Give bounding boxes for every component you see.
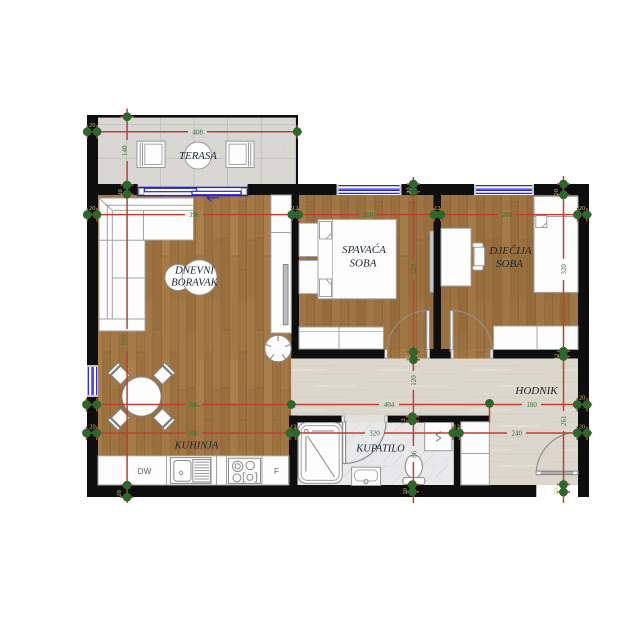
svg-text:408: 408: [192, 128, 203, 136]
svg-text:20: 20: [553, 488, 560, 494]
svg-text:120: 120: [410, 375, 418, 386]
svg-text:12: 12: [405, 355, 412, 361]
svg-text:12: 12: [434, 205, 440, 212]
svg-text:DW: DW: [138, 467, 152, 476]
svg-text:280: 280: [502, 211, 513, 219]
svg-text:140: 140: [121, 145, 129, 156]
svg-text:396: 396: [188, 430, 199, 438]
svg-text:320: 320: [560, 264, 568, 275]
svg-text:86: 86: [410, 450, 418, 458]
svg-text:20: 20: [89, 424, 95, 431]
svg-text:12: 12: [292, 205, 298, 212]
svg-text:F: F: [274, 467, 279, 476]
svg-text:240: 240: [511, 430, 522, 438]
svg-text:20: 20: [402, 488, 409, 494]
svg-text:BORAVAK: BORAVAK: [171, 277, 218, 289]
svg-text:TERASA: TERASA: [179, 150, 217, 162]
svg-text:20: 20: [405, 187, 412, 193]
svg-text:12: 12: [400, 418, 407, 424]
svg-text:261: 261: [560, 415, 568, 426]
svg-text:12: 12: [290, 424, 296, 431]
svg-text:SOBA: SOBA: [496, 258, 523, 270]
svg-text:KUHINJA: KUHINJA: [174, 441, 219, 452]
svg-text:20: 20: [116, 490, 123, 496]
svg-text:SOBA: SOBA: [350, 258, 377, 270]
svg-text:180: 180: [526, 401, 537, 409]
svg-text:DJEČIJA: DJEČIJA: [488, 245, 531, 257]
svg-text:320: 320: [369, 430, 380, 438]
svg-text:KUPATILO: KUPATILO: [355, 444, 405, 455]
svg-text:SPAVAĆA: SPAVAĆA: [342, 244, 386, 256]
svg-text:12: 12: [453, 424, 459, 431]
svg-text:HODNIK: HODNIK: [514, 385, 558, 397]
svg-text:20: 20: [579, 424, 585, 431]
svg-text:396: 396: [189, 211, 200, 219]
svg-text:DNEVNI: DNEVNI: [174, 265, 215, 277]
svg-text:20: 20: [579, 395, 585, 402]
svg-text:20: 20: [553, 189, 560, 195]
svg-text:396: 396: [188, 401, 199, 409]
svg-text:20: 20: [579, 205, 585, 212]
svg-text:12: 12: [554, 353, 561, 359]
svg-text:320: 320: [410, 264, 418, 275]
svg-text:20: 20: [117, 189, 124, 195]
svg-text:20: 20: [89, 122, 95, 129]
svg-text:404: 404: [384, 401, 395, 409]
svg-text:280: 280: [363, 211, 374, 219]
svg-text:593: 593: [121, 334, 129, 345]
svg-text:20: 20: [89, 205, 95, 212]
